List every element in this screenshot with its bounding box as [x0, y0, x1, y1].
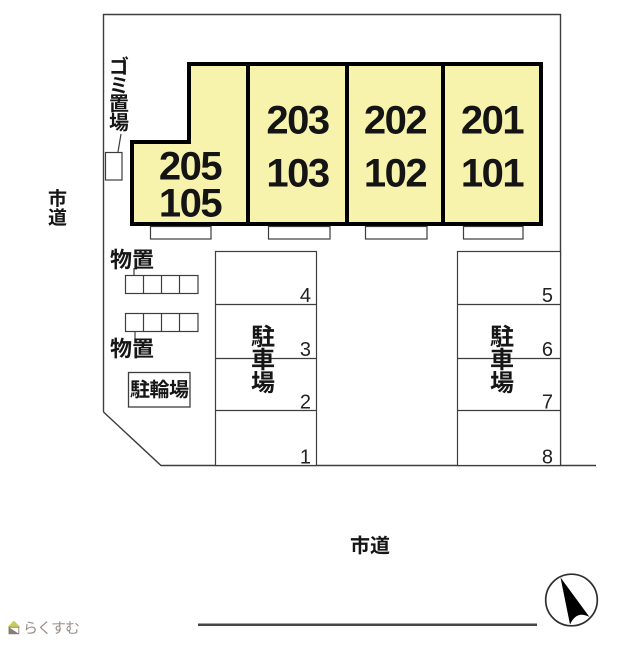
- svg-text:101: 101: [461, 152, 524, 196]
- svg-text:1: 1: [300, 447, 311, 469]
- svg-text:7: 7: [542, 392, 553, 414]
- svg-text:201: 201: [461, 99, 524, 143]
- svg-text:105: 105: [159, 182, 222, 226]
- svg-text:103: 103: [266, 152, 328, 196]
- svg-text:2: 2: [300, 392, 311, 414]
- svg-text:6: 6: [542, 339, 553, 361]
- svg-text:102: 102: [364, 152, 426, 196]
- svg-text:5: 5: [542, 285, 553, 307]
- svg-text:203: 203: [266, 99, 328, 143]
- svg-text:3: 3: [300, 339, 311, 361]
- svg-text:4: 4: [300, 285, 311, 307]
- svg-text:202: 202: [364, 99, 426, 143]
- svg-text:8: 8: [542, 447, 553, 469]
